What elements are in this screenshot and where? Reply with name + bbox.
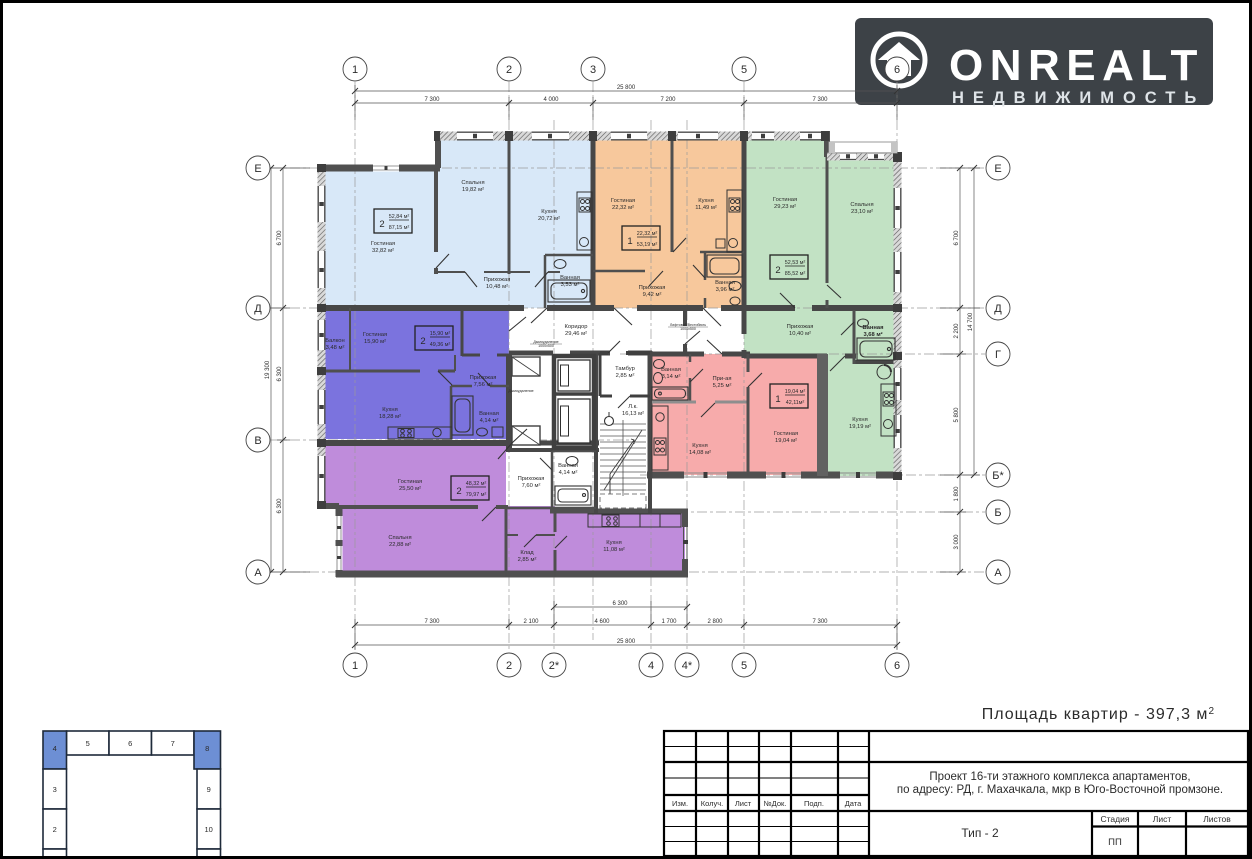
svg-text:79,97 м²: 79,97 м² (466, 492, 487, 498)
svg-text:Кухня: Кухня (698, 198, 714, 204)
svg-text:6 300: 6 300 (277, 366, 283, 382)
svg-text:1: 1 (775, 394, 780, 405)
svg-text:А: А (994, 567, 1002, 579)
svg-text:1 800: 1 800 (954, 486, 960, 502)
svg-text:2,85 м²: 2,85 м² (518, 557, 537, 563)
svg-text:4 600: 4 600 (594, 619, 610, 625)
svg-text:25 800: 25 800 (617, 639, 636, 645)
svg-text:Проект 16-ти этажного комплекс: Проект 16-ти этажного комплекса апартаме… (929, 771, 1190, 783)
svg-text:Лист: Лист (735, 799, 752, 808)
svg-text:Прихожая: Прихожая (639, 285, 666, 291)
svg-text:НЕДВИЖИМОСТЬ: НЕДВИЖИМОСТЬ (952, 89, 1205, 107)
svg-text:9,42 м²: 9,42 м² (643, 292, 662, 298)
svg-text:3,96 м²: 3,96 м² (716, 287, 735, 293)
svg-text:Гостиная: Гостиная (371, 241, 395, 247)
svg-text:Прихожая: Прихожая (484, 277, 511, 283)
svg-text:Площадь квартир - 397,3 м2: Площадь квартир - 397,3 м2 (982, 706, 1215, 723)
svg-text:29,46 м²: 29,46 м² (565, 331, 587, 337)
svg-text:49,36 м²: 49,36 м² (430, 342, 451, 348)
svg-text:6 300: 6 300 (612, 601, 628, 607)
svg-text:по адресу: РД, г. Махачкала, м: по адресу: РД, г. Махачкала, мкр в Юго-В… (897, 784, 1223, 796)
svg-text:10,40 м²: 10,40 м² (789, 331, 811, 337)
svg-text:Л.к.: Л.к. (628, 404, 638, 410)
svg-text:2*: 2* (549, 660, 560, 672)
svg-text:2: 2 (456, 486, 461, 497)
svg-text:Д: Д (254, 303, 262, 315)
svg-text:6 700: 6 700 (954, 230, 960, 246)
svg-text:Д: Д (994, 303, 1002, 315)
svg-text:Гостиная: Гостиная (398, 479, 422, 485)
svg-text:2: 2 (775, 265, 780, 276)
svg-text:25,50 м²: 25,50 м² (399, 486, 421, 492)
svg-text:2: 2 (53, 825, 57, 834)
svg-text:3,53 м²: 3,53 м² (561, 282, 580, 288)
svg-text:В: В (254, 435, 261, 447)
svg-text:6: 6 (128, 739, 132, 748)
svg-text:25 800: 25 800 (617, 85, 636, 91)
svg-text:7: 7 (171, 739, 175, 748)
svg-text:18,28 м²: 18,28 м² (379, 414, 401, 420)
svg-text:8: 8 (205, 744, 209, 753)
svg-text:5 800: 5 800 (954, 407, 960, 423)
svg-text:23,10 м²: 23,10 м² (851, 209, 873, 215)
svg-text:29,23 м²: 29,23 м² (774, 204, 796, 210)
svg-text:7 200: 7 200 (660, 97, 676, 103)
svg-text:4,14 м²: 4,14 м² (559, 470, 578, 476)
svg-text:19,19 м²: 19,19 м² (849, 424, 871, 430)
svg-text:Кухня: Кухня (852, 417, 868, 423)
svg-text:А: А (254, 567, 262, 579)
svg-text:Стадия: Стадия (1101, 814, 1130, 824)
svg-text:Колуч.: Колуч. (701, 799, 724, 808)
svg-text:7 300: 7 300 (424, 97, 440, 103)
svg-text:85,52 м²: 85,52 м² (785, 271, 806, 277)
svg-text:6: 6 (894, 64, 900, 76)
svg-text:Кухня: Кухня (606, 540, 622, 546)
svg-text:15,90 м²: 15,90 м² (430, 331, 451, 337)
svg-text:3,48 м²: 3,48 м² (326, 345, 345, 351)
svg-text:Балкон: Балкон (325, 338, 344, 344)
svg-text:3 000: 3 000 (954, 534, 960, 550)
svg-text:2 100: 2 100 (523, 619, 539, 625)
svg-text:22,88 м²: 22,88 м² (389, 542, 411, 548)
svg-text:Г: Г (995, 349, 1001, 361)
svg-text:53,19 м²: 53,19 м² (637, 242, 658, 248)
svg-text:Дымоудаление: Дымоудаление (508, 389, 533, 393)
svg-text:16,13 м²: 16,13 м² (622, 411, 644, 417)
svg-text:22,32 м²: 22,32 м² (612, 205, 634, 211)
svg-text:Е: Е (254, 163, 261, 175)
svg-text:При-ая: При-ая (713, 376, 732, 382)
svg-text:1000х500: 1000х500 (538, 344, 554, 348)
svg-text:Ванная: Ванная (715, 280, 735, 286)
svg-text:52,53 м²: 52,53 м² (785, 260, 806, 266)
svg-text:Б: Б (994, 507, 1001, 519)
svg-text:ПП: ПП (1108, 837, 1122, 848)
svg-text:48,32 м²: 48,32 м² (466, 481, 487, 487)
svg-text:Ванная: Ванная (862, 325, 883, 331)
svg-text:Подп.: Подп. (804, 799, 824, 808)
svg-text:2 200: 2 200 (954, 323, 960, 339)
svg-text:5: 5 (741, 64, 747, 76)
svg-text:11,49 м²: 11,49 м² (695, 205, 717, 211)
svg-text:Листов: Листов (1203, 814, 1231, 824)
svg-text:10: 10 (205, 825, 213, 834)
svg-text:19,82 м²: 19,82 м² (462, 187, 484, 193)
svg-text:52,84 м²: 52,84 м² (389, 214, 410, 220)
svg-text:№Док.: №Док. (764, 799, 787, 808)
svg-text:19,04 м²: 19,04 м² (775, 438, 797, 444)
svg-text:3,14 м²: 3,14 м² (662, 374, 681, 380)
svg-text:22,32 м²: 22,32 м² (637, 231, 658, 237)
svg-text:19 300: 19 300 (265, 360, 271, 379)
svg-text:4,14 м²: 4,14 м² (480, 418, 499, 424)
svg-text:14 700: 14 700 (968, 312, 974, 331)
svg-text:15,90 м²: 15,90 м² (364, 339, 386, 345)
svg-text:4 000: 4 000 (543, 97, 559, 103)
svg-text:5: 5 (86, 739, 90, 748)
svg-text:Прихожая: Прихожая (787, 324, 814, 330)
svg-text:1: 1 (352, 64, 358, 76)
svg-text:5,25 м²: 5,25 м² (713, 383, 732, 389)
svg-text:42,11м²: 42,11м² (786, 400, 805, 406)
svg-text:2: 2 (420, 336, 425, 347)
svg-text:11,08 м²: 11,08 м² (603, 547, 625, 553)
svg-text:Ванная: Ванная (479, 411, 499, 417)
svg-text:6 700: 6 700 (277, 230, 283, 246)
svg-text:2,85 м²: 2,85 м² (616, 373, 635, 379)
svg-text:Изм.: Изм. (672, 799, 688, 808)
svg-text:Ванная: Ванная (560, 275, 580, 281)
svg-text:5: 5 (741, 660, 747, 672)
svg-text:Клад: Клад (520, 550, 534, 556)
svg-text:7 300: 7 300 (812, 619, 828, 625)
svg-text:20,72 м²: 20,72 м² (538, 216, 560, 222)
svg-text:Б*: Б* (992, 470, 1004, 482)
svg-text:4*: 4* (682, 660, 693, 672)
svg-text:2: 2 (379, 219, 384, 230)
svg-text:6 300: 6 300 (277, 498, 283, 514)
svg-text:Спальня: Спальня (461, 180, 484, 186)
svg-text:Коридор: Коридор (565, 324, 588, 330)
svg-text:1: 1 (352, 660, 358, 672)
svg-text:Спальня: Спальня (388, 535, 411, 541)
svg-text:32,82 м²: 32,82 м² (372, 248, 394, 254)
svg-text:Кухня: Кухня (382, 407, 398, 413)
svg-text:Ванная: Ванная (661, 367, 681, 373)
svg-text:Кухня: Кухня (541, 209, 557, 215)
svg-text:19,04 м²: 19,04 м² (785, 389, 806, 395)
svg-text:Лист: Лист (1153, 814, 1172, 824)
svg-text:Ванная: Ванная (558, 463, 578, 469)
svg-text:2 800: 2 800 (707, 619, 723, 625)
svg-text:Кухня: Кухня (692, 443, 708, 449)
svg-text:Спальня: Спальня (850, 202, 873, 208)
svg-text:ONREALT: ONREALT (949, 41, 1204, 90)
svg-text:Гостиная: Гостиная (774, 431, 798, 437)
svg-text:3: 3 (53, 785, 57, 794)
svg-text:Е: Е (994, 163, 1001, 175)
svg-text:Тамбур: Тамбур (615, 366, 635, 372)
svg-text:2: 2 (506, 660, 512, 672)
svg-text:Тип - 2: Тип - 2 (961, 826, 999, 840)
svg-text:Гостиная: Гостиная (611, 198, 635, 204)
svg-text:1 700: 1 700 (661, 619, 677, 625)
svg-text:4: 4 (648, 660, 654, 672)
svg-text:4: 4 (53, 744, 57, 753)
svg-text:Прихожая: Прихожая (470, 375, 497, 381)
svg-text:2: 2 (506, 64, 512, 76)
svg-text:3,68 м²: 3,68 м² (863, 331, 882, 338)
svg-text:3: 3 (590, 64, 596, 76)
svg-text:Гостиная: Гостиная (773, 197, 797, 203)
svg-text:Дата: Дата (845, 799, 862, 808)
svg-text:7 300: 7 300 (424, 619, 440, 625)
svg-text:9: 9 (207, 785, 211, 794)
svg-text:Прихожая: Прихожая (518, 476, 545, 482)
svg-text:Гостиная: Гостиная (363, 332, 387, 338)
svg-text:87,15 м²: 87,15 м² (389, 225, 410, 231)
svg-text:1000х500: 1000х500 (680, 327, 696, 331)
svg-text:14,08 м²: 14,08 м² (689, 450, 711, 456)
svg-text:10,48 м²: 10,48 м² (486, 284, 508, 290)
svg-text:1: 1 (627, 236, 632, 247)
svg-text:7,60 м²: 7,60 м² (522, 483, 541, 489)
svg-text:7 300: 7 300 (812, 97, 828, 103)
svg-text:7,56 м²: 7,56 м² (474, 382, 493, 388)
svg-text:6: 6 (894, 660, 900, 672)
